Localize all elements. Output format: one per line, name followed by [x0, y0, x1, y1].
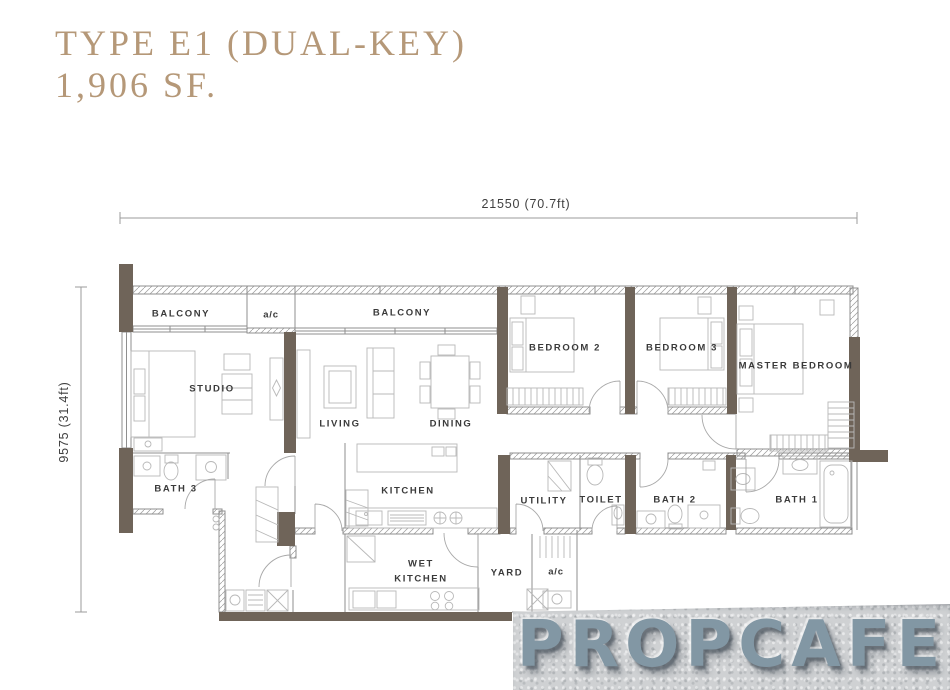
room-label-utility: UTILITY: [520, 496, 567, 507]
room-label-toilet: TOILET: [579, 495, 622, 506]
room-label-living: LIVING: [319, 419, 360, 430]
room-label-yard: YARD: [491, 568, 523, 579]
room-label-ac-bottom: a/c: [548, 567, 564, 578]
watermark-text: PROPCAFE: [517, 608, 946, 682]
room-label-bedroom2: BEDROOM 2: [529, 343, 601, 354]
floor-plan-page: TYPE E1 (DUAL-KEY) 1,906 SF. 21550 (70.7…: [0, 0, 950, 690]
room-label-kitchen: KITCHEN: [381, 486, 434, 497]
room-label-balcony-mid: BALCONY: [373, 308, 431, 319]
room-label-balcony-left: BALCONY: [152, 309, 210, 320]
room-label-bedroom3: BEDROOM 3: [646, 343, 718, 354]
room-label-bath2: BATH 2: [653, 495, 696, 506]
room-label-dining: DINING: [430, 419, 473, 430]
walls-thin: [122, 286, 858, 612]
room-label-master-bedroom: MASTER BEDROOM: [739, 361, 854, 372]
floor-plan-svg: [0, 0, 950, 690]
room-label-bath3: BATH 3: [154, 484, 197, 495]
room-label-wet-kitchen: WET KITCHEN: [384, 557, 458, 586]
room-label-bath1: BATH 1: [775, 495, 818, 506]
room-label-ac-top: a/c: [263, 310, 279, 321]
room-label-studio: STUDIO: [189, 384, 235, 395]
watermark-propcafe: PROPCAFE: [513, 604, 950, 690]
